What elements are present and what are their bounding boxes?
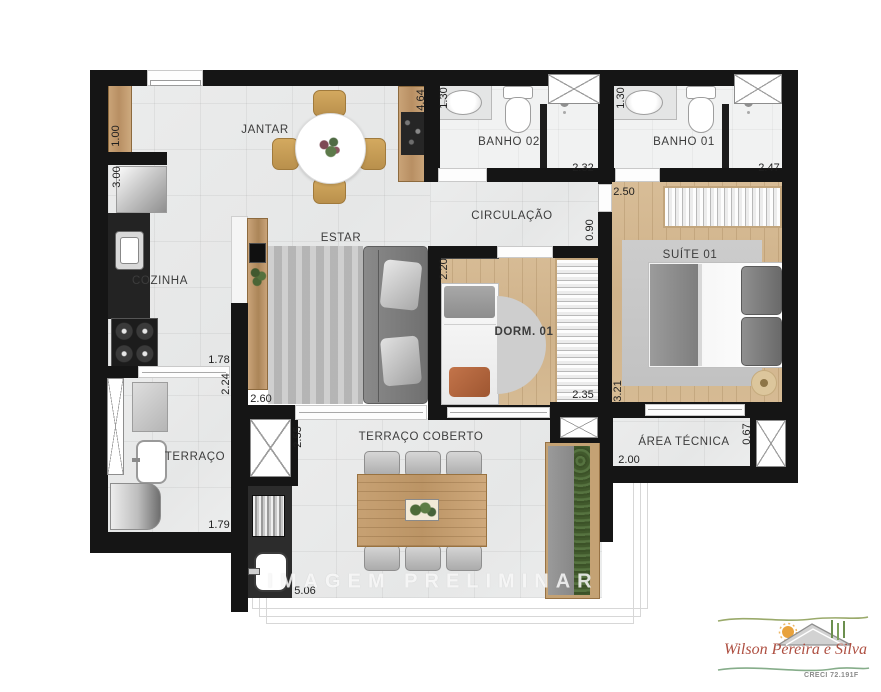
wall-cozinha-terraco xyxy=(106,366,138,378)
terraco-window-icon xyxy=(107,378,124,475)
dim-tc-w: 2.55 xyxy=(292,426,304,447)
dim-dorm-len: 2.35 xyxy=(572,389,593,401)
wall-banho-divider xyxy=(598,70,614,182)
label-estar: ESTAR xyxy=(321,232,362,244)
label-dorm01: DORM. 01 xyxy=(494,326,553,338)
dorm-window xyxy=(447,407,550,418)
logo-creci-text: CRECI 72.191F xyxy=(804,672,859,679)
sliding-door-estar-terraco xyxy=(295,405,427,420)
toilet-bowl xyxy=(505,97,531,133)
kitchen-sink xyxy=(115,231,144,270)
suite-bed xyxy=(648,262,783,368)
washing-machine-icon xyxy=(110,483,161,530)
dorm-pillow xyxy=(444,286,495,318)
label-cozinha: COZINHA xyxy=(132,275,188,287)
logo-bottom-wave xyxy=(718,668,869,671)
dorm-blanket-fold xyxy=(444,324,496,325)
realtor-logo: Wilson Pereira e Silva CRECI 72.191F xyxy=(712,608,874,688)
dim-jantar-depth: 4.64 xyxy=(415,89,427,110)
terrace-chair xyxy=(364,545,400,571)
dim-banho02-len: 2.32 xyxy=(572,162,593,174)
window-line xyxy=(450,412,547,413)
sliding-door-line xyxy=(142,372,226,373)
dim-suite-len: 3.21 xyxy=(612,380,624,401)
sliding-door-cozinha-terraco xyxy=(138,366,230,378)
label-banho02: BANHO 02 xyxy=(478,136,540,148)
sofa xyxy=(363,246,428,404)
tv-unit-side xyxy=(231,216,248,304)
dorm-wardrobe xyxy=(555,258,602,405)
water-heater-icon xyxy=(252,495,285,537)
laundry-tank-icon xyxy=(136,440,167,484)
dorm-bed xyxy=(441,283,499,405)
dim-circ-w: 0.90 xyxy=(584,219,596,240)
living-rug xyxy=(268,246,363,404)
tv-icon xyxy=(249,243,266,263)
sofa-cushion xyxy=(380,259,423,311)
dim-hall-niche: 1.00 xyxy=(110,125,122,146)
terrace-table-planter xyxy=(405,499,439,521)
plant-icon xyxy=(249,265,267,287)
wall-jantar-stub xyxy=(106,152,167,165)
area-tecnica-shaft-icon xyxy=(756,420,786,467)
utility-sink-faucet xyxy=(248,568,260,575)
stove-icon xyxy=(111,318,158,367)
sliding-door-line xyxy=(299,412,423,413)
dim-at-w: 0.67 xyxy=(741,423,753,444)
suite-side-rug xyxy=(751,370,777,396)
suite-pillow xyxy=(741,266,782,315)
table-centerpiece-flowers xyxy=(316,134,343,161)
fridge xyxy=(116,166,167,213)
suite-duvet-fold xyxy=(698,264,702,366)
dim-estar-w: 2.60 xyxy=(250,393,271,405)
kitchen-sink-basin xyxy=(120,237,139,264)
tank-faucet xyxy=(132,458,140,462)
sofa-cushion xyxy=(380,335,422,386)
logo-name-text: Wilson Pereira e Silva xyxy=(724,641,867,659)
entry-door-leaf xyxy=(150,80,201,86)
label-jantar: JANTAR xyxy=(241,124,288,136)
sofa-seat-line xyxy=(378,250,379,402)
label-area-tecnica: ÁREA TÉCNICA xyxy=(638,436,729,448)
banho01-shower-partition xyxy=(722,104,729,170)
terrace-chair xyxy=(446,545,482,571)
banho02-toilet-icon xyxy=(500,86,534,132)
wall-suite-left xyxy=(598,182,612,420)
dim-at-len: 2.00 xyxy=(618,454,639,466)
floor-plan: JANTAR COZINHA ESTAR CIRCULAÇÃO BANHO 02… xyxy=(0,0,881,692)
dim-cozinha-d: 2.24 xyxy=(220,373,232,394)
label-terraco: TERRAÇO xyxy=(165,451,225,463)
wall-left xyxy=(90,70,108,553)
banho02-door-opening xyxy=(438,168,487,182)
dim-dorm-w: 2.20 xyxy=(438,258,450,279)
suite-wardrobe xyxy=(663,186,782,228)
dim-cozinha-w: 1.78 xyxy=(208,354,229,366)
dim-banho02-w: 1.30 xyxy=(438,87,450,108)
terrace-chair xyxy=(405,545,441,571)
toilet-bowl xyxy=(688,97,714,133)
banho01-window-icon xyxy=(734,74,782,104)
dorm-door-opening xyxy=(497,246,553,258)
dim-banho01-len: 2.47 xyxy=(758,162,779,174)
suite-side-rug-dot xyxy=(760,379,768,387)
label-circulacao: CIRCULAÇÃO xyxy=(471,210,552,222)
suite-pillow xyxy=(741,317,782,366)
watermark-text: IMAGEM PRELIMINAR xyxy=(267,571,598,594)
area-tecnica-vent xyxy=(645,404,745,416)
dorm-orange-cushion xyxy=(449,367,490,397)
label-banho01: BANHO 01 xyxy=(653,136,715,148)
dim-cozinha-len: 3.00 xyxy=(111,166,123,187)
window-line xyxy=(648,409,742,410)
label-terraco-coberto: TERRAÇO COBERTO xyxy=(359,431,484,443)
suite-door-opening xyxy=(598,184,612,212)
wall-terraco-bottom xyxy=(90,532,248,553)
logo-top-wave xyxy=(718,617,868,621)
banho01-toilet-icon xyxy=(683,86,717,132)
label-suite01: SUÍTE 01 xyxy=(663,249,718,261)
entry-door-opening xyxy=(147,70,203,86)
dim-banho01-w: 1.30 xyxy=(615,87,627,108)
shaft-ne-icon xyxy=(560,417,598,438)
dim-terraco-w: 1.79 xyxy=(208,519,229,531)
wall-terraco-coberto-right xyxy=(600,443,613,542)
suite-blanket xyxy=(650,264,698,366)
banho02-shower-partition xyxy=(540,104,547,170)
terraco-cabinet xyxy=(132,382,168,432)
banho01-door-opening xyxy=(615,168,660,182)
banho01-sink-icon xyxy=(625,90,663,115)
dim-suite-w: 2.50 xyxy=(613,186,634,198)
shaft-sw-icon xyxy=(250,419,291,477)
banho02-window-icon xyxy=(548,74,600,104)
